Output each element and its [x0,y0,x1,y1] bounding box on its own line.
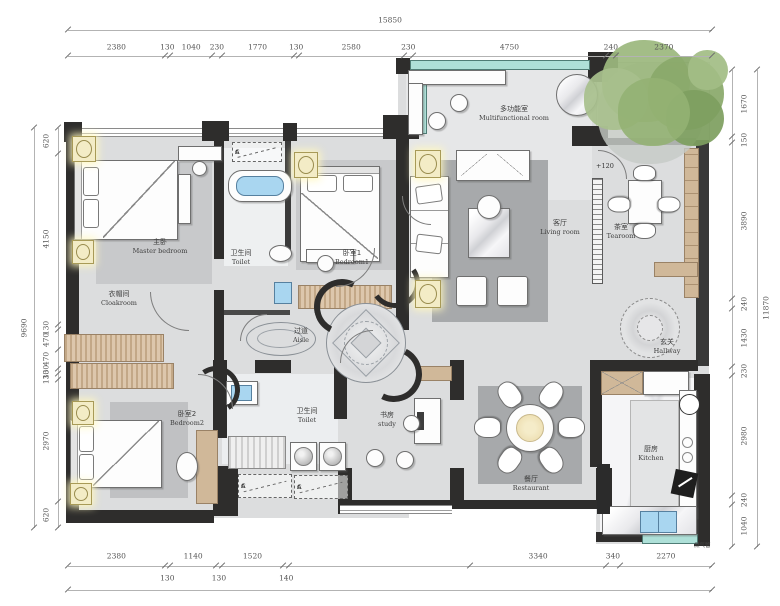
pillow [83,167,99,196]
armchair [456,276,487,306]
living-sofa [410,176,449,278]
dim-label: 130 [289,43,303,52]
window-bedroom1 [297,128,383,137]
label-en: Toilet [297,416,318,424]
room-label-toilet-main: 卫生间 Toilet [231,249,252,266]
wall-hallway-kitchen [590,360,698,371]
wall-study-restaurant-lower [450,468,464,506]
dim-label: 2980 [740,426,749,445]
dim-tick [709,26,715,32]
dim-label: 2380 [107,552,126,561]
armchair [497,276,528,306]
dim-tick [709,586,715,592]
cloakroom-wardrobe [64,334,164,362]
label-cn: 餐厅 [513,475,550,484]
room-label-multifunctional: 多功能室 Multifunctional room [479,105,549,122]
cabinet-cross [602,372,642,394]
dim-label: 620 [42,134,51,148]
section-marker: A C [232,142,282,162]
wall-column [202,121,229,141]
bench-pillow [497,154,523,176]
side-table-lamp-symbol [415,280,441,308]
dim-label: 3890 [740,212,749,231]
washer-drum [323,447,342,466]
dim-label: 230 [740,364,749,378]
label-en: Hallway [654,347,681,355]
room-label-bedroom1: 卧室1 Bedroom1 [335,249,369,266]
dim-label: 140 [279,574,293,583]
label-en: Living room [540,228,580,236]
dim-label: 1430 [740,328,749,347]
dim-label: 470 [42,333,51,347]
room-label-master-bedroom: 主卧 Master bedroom [133,238,188,255]
fridge-icon [679,394,700,415]
dim-label: 4750 [500,43,519,52]
room-label-kitchen: 厨房 Kitchen [638,445,663,462]
slatted-screen [592,178,603,284]
dim-label: 240 [604,43,618,52]
tearoom-chair [633,165,656,181]
label-en: Restaurant [513,484,550,492]
tree-canopy [618,78,690,146]
dim-label: 2970 [42,432,51,451]
bench-pillow [461,154,487,176]
pillow [83,199,99,228]
dim-label: 130 [160,574,174,583]
label-cn: 卧室2 [170,410,204,419]
label-en: Master bedroom [133,247,188,255]
side-table-lamp-symbol [415,150,441,178]
glass-wall-multifunctional [410,60,590,70]
dim-label: 230 [401,43,415,52]
label-cn: 衣帽间 [101,290,137,299]
nightstand-lamp-symbol [294,152,318,178]
mf-chair [450,94,468,112]
toilet-sink [274,282,292,304]
label-en: Cloakroom [101,299,137,307]
bathtub-water [236,176,284,196]
wall-study-restaurant [450,360,464,400]
master-bed [74,160,178,240]
dim-label: 1140 [184,552,203,561]
vanity-stool [192,161,207,176]
duvet-fold [93,421,159,486]
marker-c: C [235,148,240,156]
marker-diagonal [244,480,287,492]
dim-label: 130 [160,43,174,52]
glass-kitchen-window [642,534,698,544]
dim-label: 15850 [378,16,402,25]
dim-tick [729,543,735,549]
room-label-living: 客厅 Living room [540,219,580,236]
dim-label: 150 [740,133,749,147]
label-cn: 厨房 [638,445,663,454]
room-label-study: 书房 study [378,411,396,428]
pillow [79,426,94,452]
section-marker: A C [294,475,348,499]
study-cabinet [420,366,452,381]
study-chair [403,415,420,432]
shower-area [228,436,286,469]
dining-chair [558,417,585,438]
label-cn: 过道 [293,327,309,336]
dim-tick [709,562,715,568]
dim-label: 4150 [42,230,51,249]
kitchen-tall-unit [597,464,610,514]
label-en: Aisle [293,336,309,344]
washer-drum [294,447,313,466]
bedroom2-bed [70,420,162,488]
dim-label: 2380 [107,43,126,52]
label-en: Toilet [231,258,252,266]
kitchen-sink-basin [658,511,677,533]
label-cn: 卧室1 [335,249,369,258]
room-label-restaurant: 餐厅 Restaurant [513,475,550,492]
room-label-cloakroom: 衣帽间 Cloakroom [101,290,137,307]
label-cn: 主卧 [133,238,188,247]
dim-label: 3340 [529,552,548,561]
dim-tick [55,524,61,530]
nightstand-lamp-symbol [72,136,96,162]
wall-toilet2-top [255,360,291,373]
window-master [82,128,202,137]
label-cn: 书房 [378,411,396,420]
dim-label: 2270 [656,552,675,561]
wall-toilet-bottom [224,310,290,315]
label-cn: 茶室 [607,223,636,232]
mf-desk-return [408,83,423,135]
label-cn: 客厅 [540,219,580,228]
dim-label: 11870 [762,296,771,320]
room-label-bedroom2: 卧室2 Bedroom2 [170,410,204,427]
kitchen-sink-basin [640,511,659,533]
duvet-fold [103,161,175,238]
living-bench [456,150,530,181]
dining-chair [474,417,501,438]
master-vanity [178,146,222,161]
label-cn: 玄关 [654,338,681,347]
label-en: Multifunctional room [479,114,549,122]
room-label-tearoom: 茶室 Tearoom [607,223,636,240]
bedroom2-chair [176,452,198,481]
dim-label: 620 [42,508,51,522]
wall-column [283,123,297,141]
label-en: Bedroom2 [170,419,204,427]
room-label-aisle: 过道 Aisle [293,327,309,344]
dim-label: 2580 [342,43,361,52]
label-cn: 卫生间 [297,407,318,416]
marker-c: C [241,482,246,490]
dim-label: 130 [212,574,226,583]
room-label-toilet2: 卫生间 Toilet [297,407,318,424]
mf-chair [428,112,446,130]
label-en: Kitchen [638,454,663,462]
wall-bottom-left [66,510,214,523]
nightstand-lamp-symbol [70,483,92,505]
floor-plan-canvas: A C A C A C +120 燃气管 主卧 Master bedroom 卫… [0,0,780,606]
study-chair [396,451,414,469]
tearoom-chair [633,223,656,239]
stove-burner [682,437,693,448]
marker-diagonal [237,147,276,158]
dim-label: 1770 [248,43,267,52]
bed-headboard [71,421,78,487]
dining-table-center [516,414,544,442]
dim-label: 130 [42,370,51,384]
dim-line [34,128,35,528]
tearoom-cabinet [654,262,698,277]
dim-tick [754,543,760,549]
bed-headboard [75,161,82,239]
master-bed-bench [178,174,191,224]
dim-label: 230 [210,43,224,52]
cloakroom-wardrobe [70,363,174,389]
bedroom2-desk [196,430,218,504]
wall-master-toilet-lower [214,290,224,370]
dim-label: 9690 [20,318,29,337]
section-marker: A C [238,474,292,498]
tearoom-chair [658,197,681,213]
dim-label: 240 [740,297,749,311]
dim-label: 1040 [740,517,749,536]
board-slash [678,477,693,487]
dim-label: 240 [740,493,749,507]
dim-line [68,590,712,591]
sofa-pillow [415,233,443,254]
toilet-wc [269,245,292,262]
marker-diagonal [300,481,343,493]
dim-label: 1040 [182,43,201,52]
desk-chair [317,255,334,272]
level-marker: +120 [596,162,614,170]
dim-label: 340 [606,552,620,561]
tearoom-chair [608,197,631,213]
nightstand-lamp-symbol [72,240,94,264]
dim-label: 1520 [243,552,262,561]
dim-label: 1670 [740,94,749,113]
dim-line [68,30,712,31]
dim-label: 2370 [654,43,673,52]
stove-burner [682,452,693,463]
label-en: Tearoom [607,232,636,240]
label-en: Bedroom1 [335,258,369,266]
hallway-shoe-cabinet [601,371,643,395]
label-en: study [378,420,396,428]
dim-tick [31,524,37,530]
pillow [79,454,94,480]
nightstand-lamp-symbol [72,401,94,425]
side-table-round [477,195,501,219]
dim-line [757,70,758,547]
room-label-hallway: 玄关 Hallway [654,338,681,355]
label-cn: 卫生间 [231,249,252,258]
gas-pipe-label: 燃气管 [694,541,711,549]
pillow [343,175,373,192]
window-study [340,505,452,514]
window-toilet [229,128,283,137]
label-cn: 多功能室 [479,105,549,114]
marker-c: C [297,483,302,491]
study-chair [366,449,384,467]
